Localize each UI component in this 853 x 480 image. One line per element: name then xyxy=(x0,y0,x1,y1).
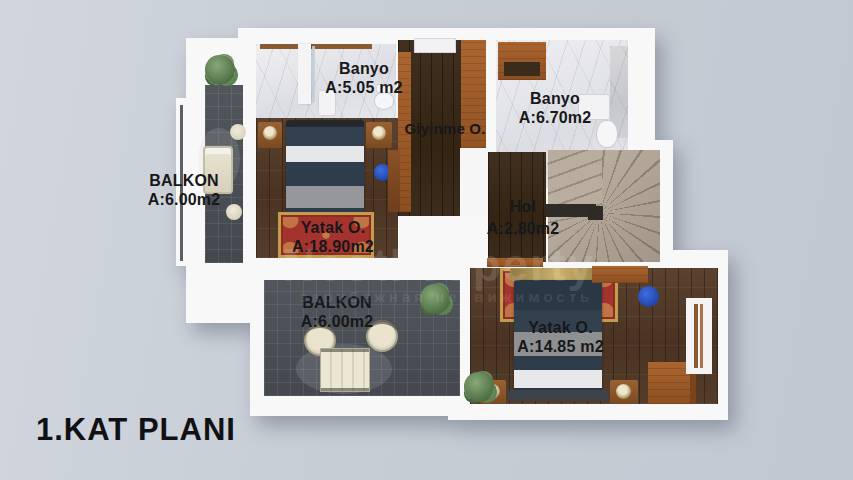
floor-plan-render: BALKON A:6.00m2 Banyo A:5.05 m2 Giyinme … xyxy=(0,0,853,480)
stair-newel-symbol xyxy=(588,206,603,220)
door-symbol xyxy=(694,304,698,368)
double-bed-symbol xyxy=(286,120,364,214)
building-footprint xyxy=(0,0,853,480)
label-giyinme: Giyinme O. xyxy=(397,120,493,138)
door-symbol xyxy=(414,38,456,53)
room-name: Hol xyxy=(473,198,573,217)
room-name: Banyo xyxy=(314,60,414,79)
bathroom-shelf-symbol xyxy=(260,44,372,49)
label-yatak-right: Yatak O. A:14.85 m2 xyxy=(508,319,613,357)
lamp-symbol xyxy=(263,126,277,140)
room-name: Giyinme O. xyxy=(397,120,493,138)
room-name: Yatak O. xyxy=(508,319,613,338)
wardrobe-symbol xyxy=(592,266,648,283)
page-title: 1.KAT PLANI xyxy=(36,412,236,448)
room-area: A:6.70m2 xyxy=(505,109,605,128)
label-hol: Hol A:2.80m2 xyxy=(473,198,573,239)
room-area: A:2.80m2 xyxy=(473,220,573,239)
bed-base-symbol xyxy=(508,390,608,401)
label-yatak-left: Yatak O. A:18.90m2 xyxy=(283,219,383,257)
room-area: A:6.00m2 xyxy=(134,191,234,210)
stool-symbol xyxy=(638,286,659,307)
label-balkon-left: BALKON A:6.00m2 xyxy=(134,172,234,210)
plant-symbol xyxy=(205,55,235,85)
room-name: Banyo xyxy=(505,90,605,109)
room-area: A:5.05 m2 xyxy=(314,79,414,98)
label-banyo-top: Banyo A:5.05 m2 xyxy=(314,60,414,98)
desk-symbol xyxy=(388,150,400,212)
room-area: A:18.90m2 xyxy=(283,238,383,257)
label-balkon-bottom: BALKON A:6.00m2 xyxy=(287,294,387,332)
label-banyo-right: Banyo A:6.70m2 xyxy=(505,90,605,128)
shower-partition-symbol xyxy=(298,44,311,104)
room-area: A:14.85 m2 xyxy=(508,338,613,357)
vanity-counter-symbol xyxy=(504,62,540,76)
room-name: BALKON xyxy=(287,294,387,313)
plant-symbol xyxy=(464,372,494,402)
table-symbol xyxy=(320,348,370,392)
plant-symbol xyxy=(420,284,450,314)
side-table-symbol xyxy=(230,124,246,140)
door-frame-symbol xyxy=(700,304,703,368)
room-name: Yatak O. xyxy=(283,219,383,238)
door-recess xyxy=(686,298,712,374)
room-name: BALKON xyxy=(134,172,234,191)
room-area: A:6.00m2 xyxy=(287,313,387,332)
lamp-symbol xyxy=(372,126,386,140)
lamp-symbol xyxy=(616,384,631,399)
door-threshold-symbol xyxy=(487,258,543,267)
